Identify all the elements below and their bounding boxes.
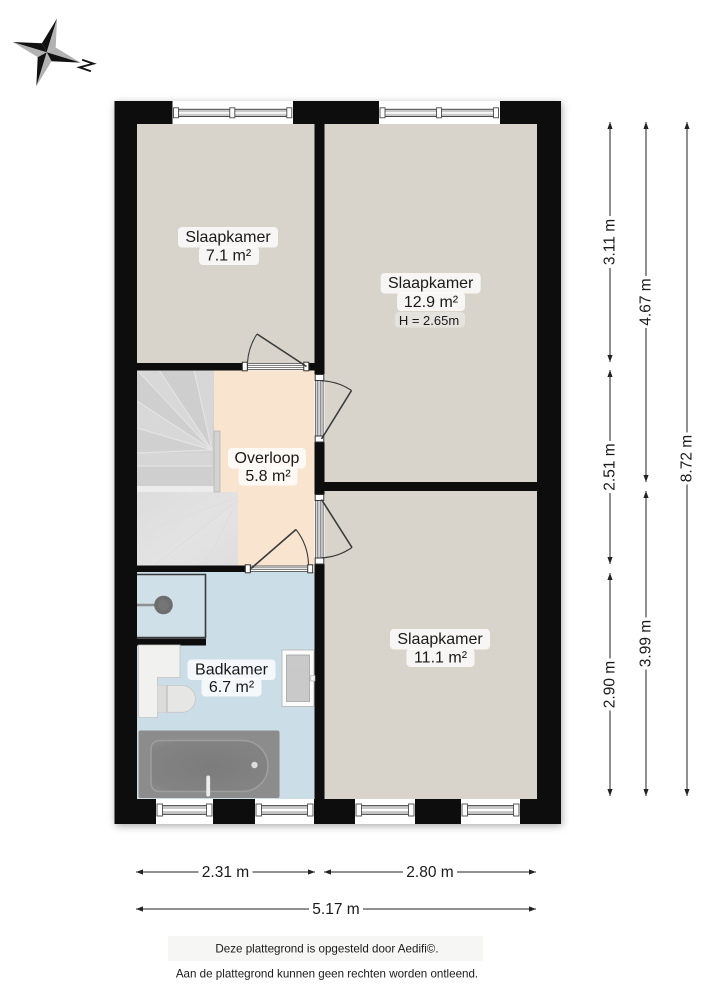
svg-text:11.1 m²: 11.1 m² [414, 649, 468, 666]
svg-text:2.90 m: 2.90 m [602, 661, 619, 708]
svg-text:6.7 m²: 6.7 m² [209, 679, 255, 696]
svg-text:Overloop: Overloop [235, 450, 300, 467]
svg-text:7.1 m²: 7.1 m² [206, 247, 252, 264]
svg-text:H = 2.65m: H = 2.65m [399, 313, 459, 328]
svg-text:Badkamer: Badkamer [195, 662, 269, 679]
svg-text:Deze plattegrond is opgesteld: Deze plattegrond is opgesteld door Aedif… [215, 942, 438, 955]
svg-text:2.31 m: 2.31 m [202, 864, 249, 881]
svg-text:3.11 m: 3.11 m [602, 219, 619, 265]
svg-text:2.80 m: 2.80 m [406, 864, 453, 881]
svg-text:Aan de plattegrond kunnen geen: Aan de plattegrond kunnen geen rechten w… [176, 967, 478, 980]
svg-text:8.72 m: 8.72 m [679, 435, 696, 482]
svg-text:5.8 m²: 5.8 m² [245, 468, 291, 485]
svg-text:5.17 m: 5.17 m [312, 901, 359, 918]
svg-text:2.51 m: 2.51 m [602, 443, 619, 490]
svg-text:Slaapkamer: Slaapkamer [388, 275, 474, 292]
svg-text:12.9 m²: 12.9 m² [404, 294, 459, 311]
svg-text:3.99 m: 3.99 m [638, 620, 655, 667]
svg-text:4.67 m: 4.67 m [638, 278, 655, 325]
svg-text:Slaapkamer: Slaapkamer [185, 229, 271, 246]
svg-text:Slaapkamer: Slaapkamer [397, 631, 483, 648]
